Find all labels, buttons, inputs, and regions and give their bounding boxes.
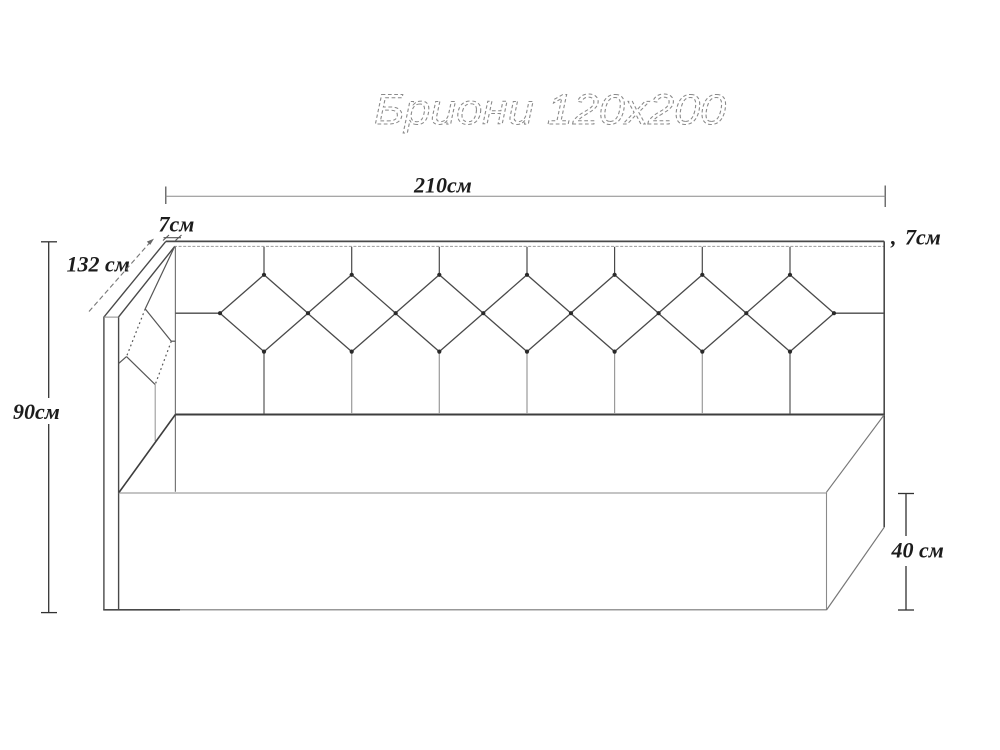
svg-text:132 см: 132 см — [67, 252, 130, 277]
svg-text:210см: 210см — [413, 173, 472, 198]
svg-text:40 см: 40 см — [891, 538, 944, 563]
svg-text:Бриони 120х200: Бриони 120х200 — [374, 86, 726, 134]
svg-text:7см: 7см — [159, 212, 195, 237]
svg-text:90см: 90см — [13, 399, 60, 424]
